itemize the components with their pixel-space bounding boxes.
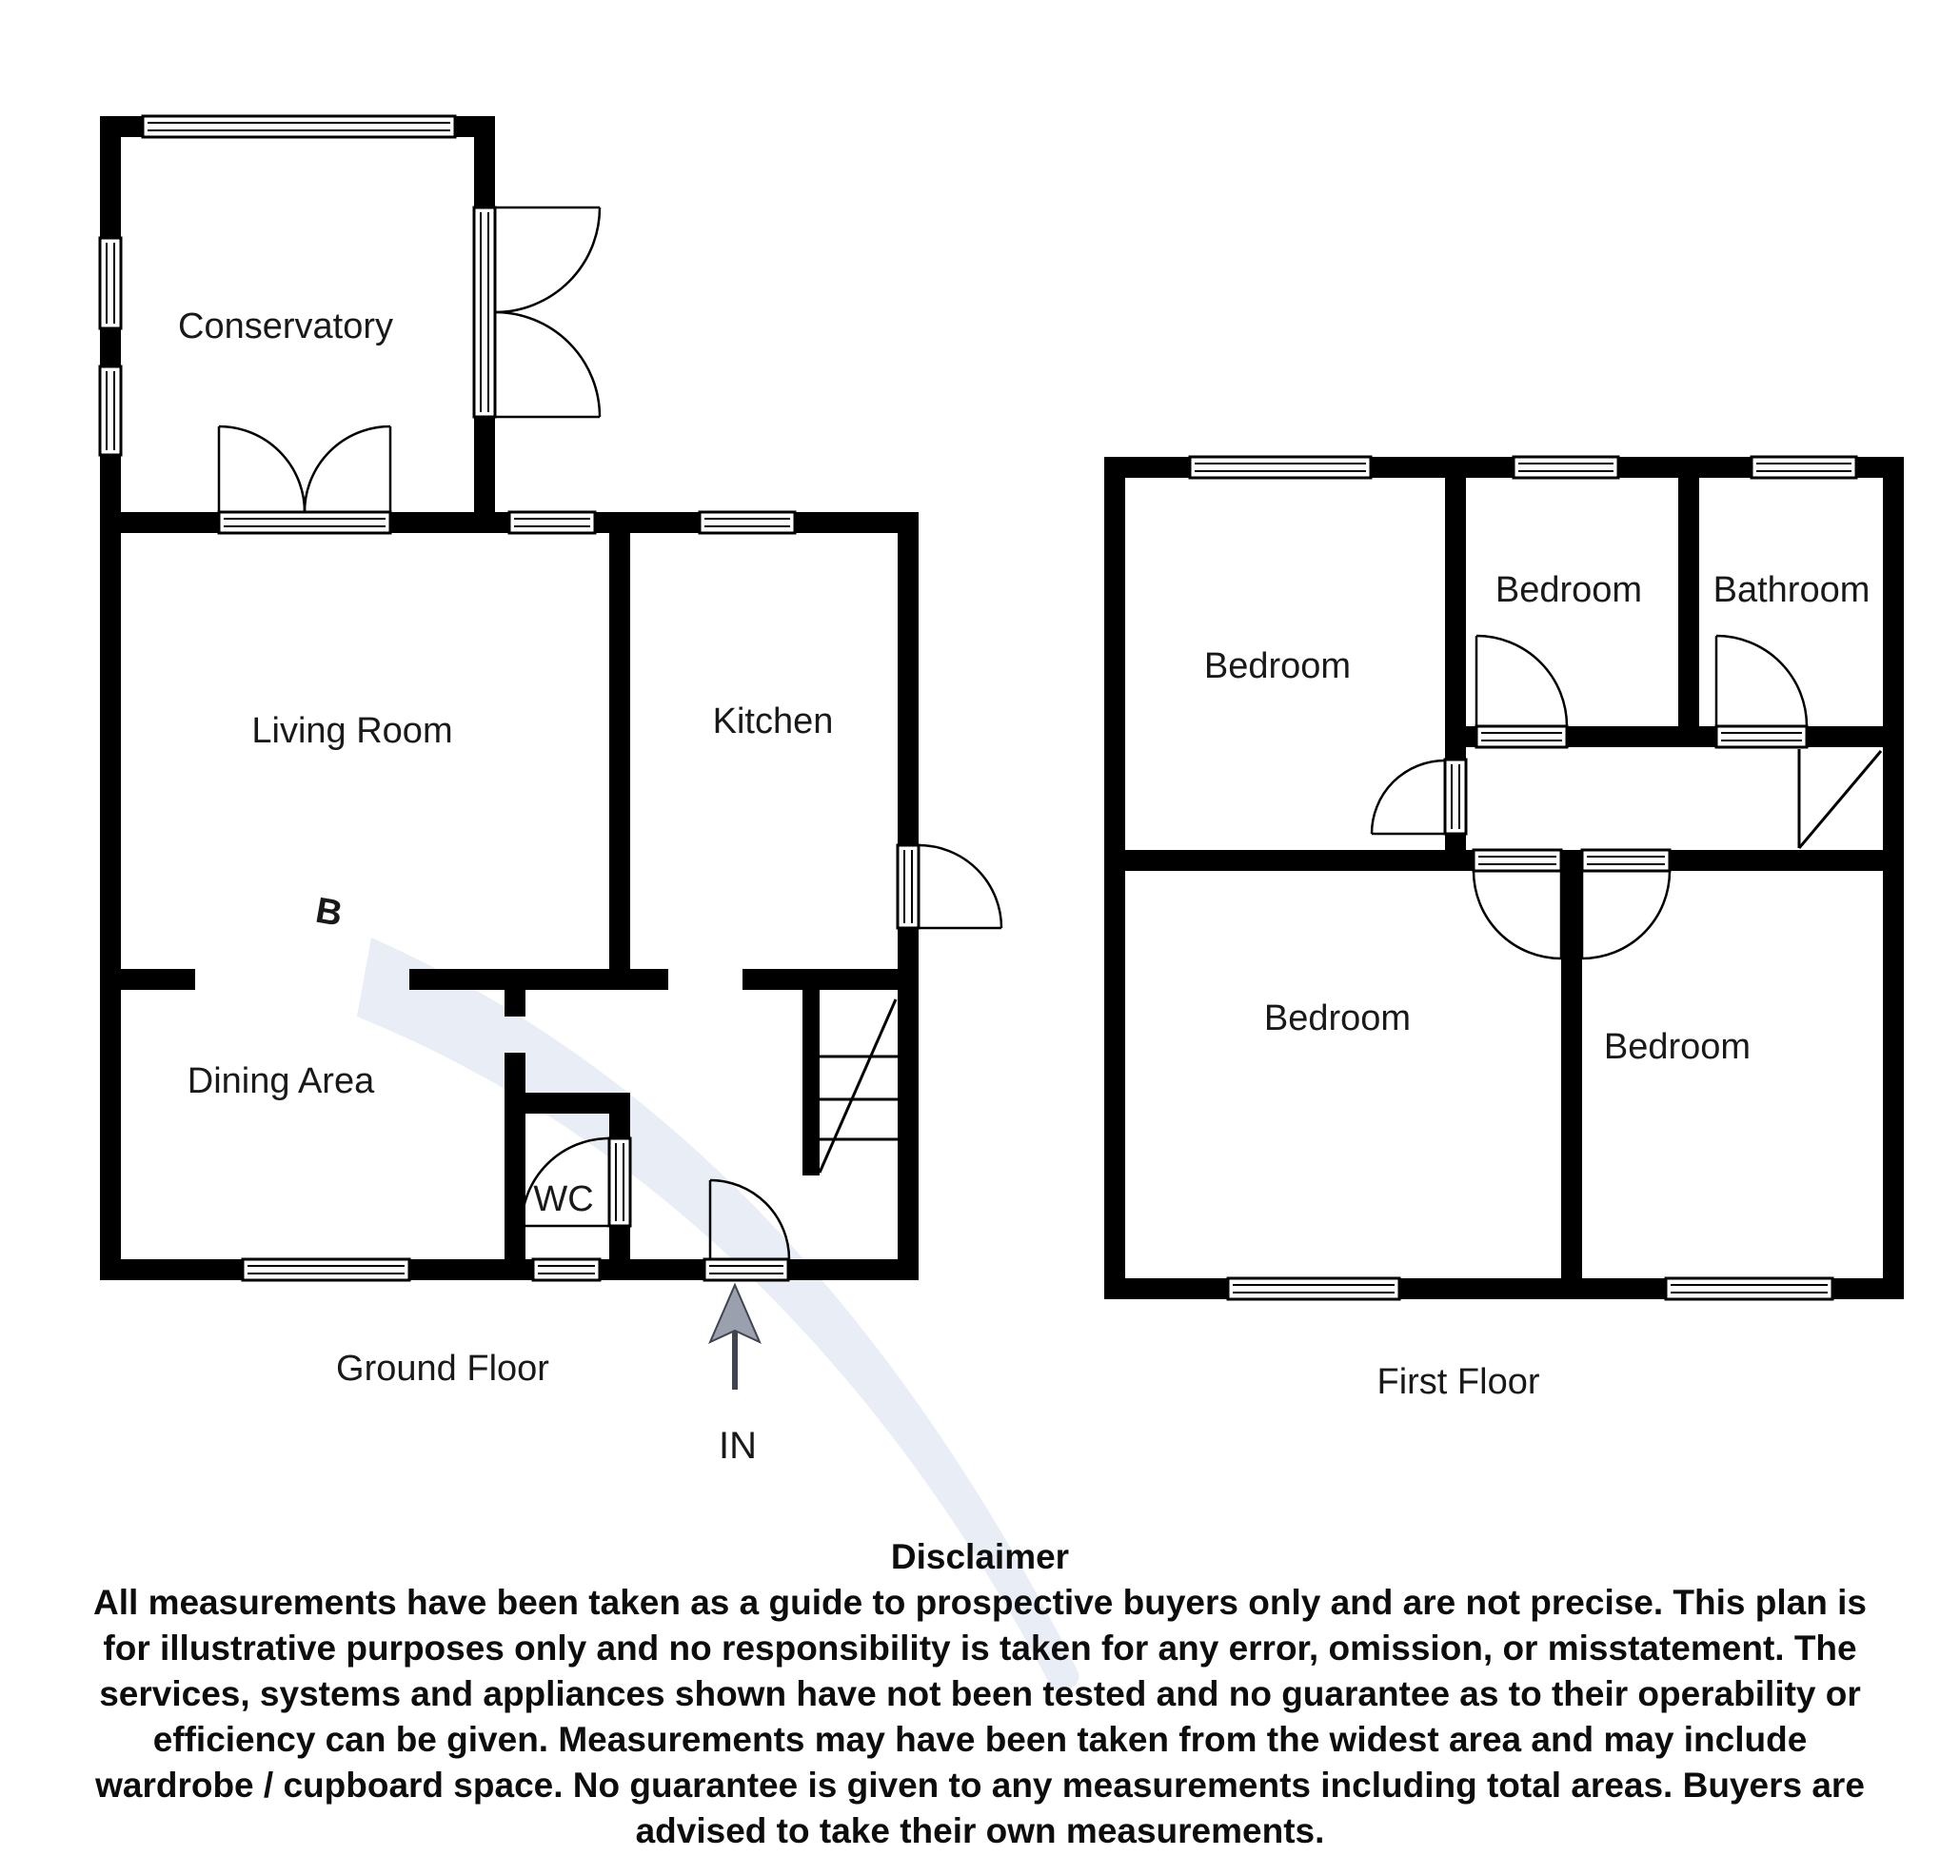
stairs-ground-floor [820, 999, 898, 1173]
window [100, 238, 121, 328]
first-floor-plan: Bedroom Bedroom Bathroom Bedroom Bedroom… [1104, 457, 1904, 1402]
window [1514, 457, 1618, 478]
door-frame [609, 1138, 630, 1226]
floor-title-ground: Ground Floor [336, 1349, 549, 1389]
door-swing-bedroom-left [1372, 760, 1445, 834]
door-swing-french-doors [219, 426, 390, 512]
ground-floor-walls [100, 116, 919, 1280]
door-frame [898, 845, 919, 928]
ground-floor-plan: Conservatory Living Room Kitchen Dining … [100, 116, 1001, 1467]
room-label-kitchen: Kitchen [713, 701, 834, 741]
door-swing-conservatory-double [495, 207, 600, 417]
door-frame [474, 207, 495, 417]
disclaimer: Disclaimer All measurements have been ta… [0, 1534, 1960, 1854]
room-label-wc: WC [533, 1179, 593, 1219]
door-frame [1476, 726, 1567, 747]
window [1752, 457, 1856, 478]
room-label-conservatory: Conservatory [178, 306, 393, 346]
entrance-label: IN [719, 1425, 757, 1467]
room-label-bedroom-1: Bedroom [1204, 646, 1351, 686]
window [533, 1259, 600, 1280]
door-swing-bedroom-bottom-left [1474, 871, 1561, 958]
disclaimer-title: Disclaimer [0, 1534, 1960, 1580]
disclaimer-line: All measurements have been taken as a gu… [0, 1580, 1960, 1626]
window [243, 1259, 409, 1280]
disclaimer-line: advised to take their own measurements. [0, 1808, 1960, 1854]
door-frame [1716, 726, 1807, 747]
room-label-dining-area: Dining Area [188, 1061, 375, 1101]
watermark-letter: B [312, 891, 345, 935]
disclaimer-line: efficiency can be given. Measurements ma… [0, 1717, 1960, 1763]
floor-title-first: First Floor [1377, 1362, 1540, 1402]
door-frame [704, 1259, 788, 1280]
door-frame [1582, 850, 1670, 871]
room-label-bathroom: Bathroom [1713, 570, 1871, 610]
window [700, 512, 795, 533]
door-swing-bedroom-bottom-right [1582, 871, 1670, 958]
door-swing-kitchen [919, 845, 1001, 928]
room-label-bedroom-3: Bedroom [1264, 998, 1411, 1038]
door-frame [1445, 760, 1466, 834]
disclaimer-line: services, systems and appliances shown h… [0, 1671, 1960, 1717]
room-label-bedroom-4: Bedroom [1604, 1027, 1751, 1067]
window [509, 512, 595, 533]
entrance-arrow-icon [710, 1285, 760, 1390]
door-frame [1474, 850, 1561, 871]
window [143, 116, 455, 137]
stairs-first-floor [1799, 749, 1881, 848]
room-label-bedroom-2: Bedroom [1495, 570, 1642, 610]
door-swing-bathroom [1716, 636, 1807, 726]
window [100, 366, 121, 455]
room-label-living-room: Living Room [251, 711, 452, 751]
door-frame [219, 512, 390, 533]
disclaimer-line: for illustrative purposes only and no re… [0, 1626, 1960, 1671]
window [1228, 1278, 1399, 1299]
window [1666, 1278, 1832, 1299]
disclaimer-line: wardrobe / cupboard space. No guarantee … [0, 1763, 1960, 1808]
window [1190, 457, 1371, 478]
door-swing-bedroom-middle [1476, 636, 1567, 726]
